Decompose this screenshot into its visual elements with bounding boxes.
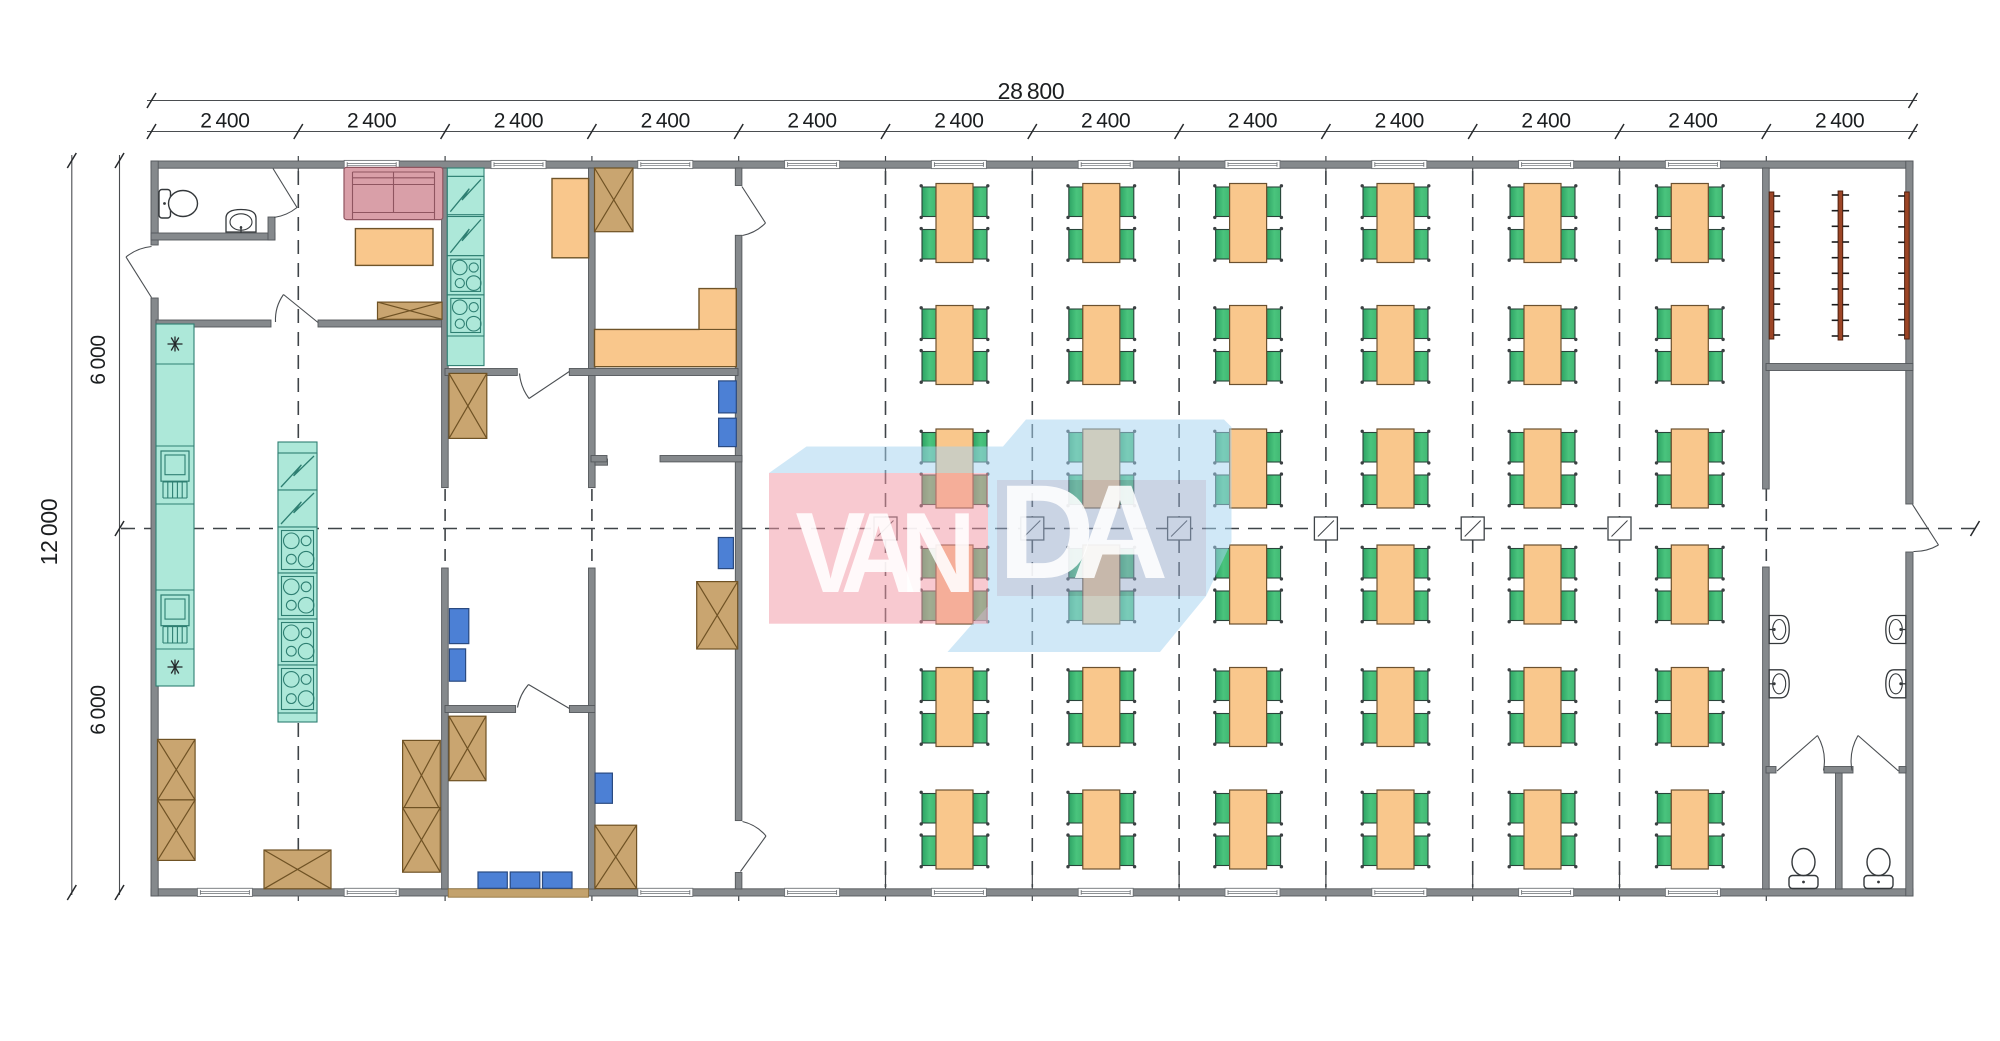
svg-text:2 400: 2 400 xyxy=(1668,110,1717,133)
svg-text:2 400: 2 400 xyxy=(1815,110,1864,133)
svg-text:2 400: 2 400 xyxy=(200,110,249,133)
svg-text:2 400: 2 400 xyxy=(347,110,396,133)
svg-text:6 000: 6 000 xyxy=(87,685,110,734)
svg-text:A: A xyxy=(1072,458,1169,607)
svg-text:2 400: 2 400 xyxy=(1081,110,1130,133)
svg-text:2 400: 2 400 xyxy=(787,110,836,133)
svg-text:2 400: 2 400 xyxy=(1228,110,1277,133)
svg-text:6 000: 6 000 xyxy=(87,335,110,384)
svg-text:2 400: 2 400 xyxy=(1375,110,1424,133)
svg-text:12 000: 12 000 xyxy=(36,499,62,566)
svg-text:2 400: 2 400 xyxy=(1521,110,1570,133)
svg-text:2 400: 2 400 xyxy=(494,110,543,133)
svg-text:2 400: 2 400 xyxy=(934,110,983,133)
svg-text:2 400: 2 400 xyxy=(641,110,690,133)
svg-text:28 800: 28 800 xyxy=(998,78,1065,104)
svg-text:N: N xyxy=(900,490,976,617)
